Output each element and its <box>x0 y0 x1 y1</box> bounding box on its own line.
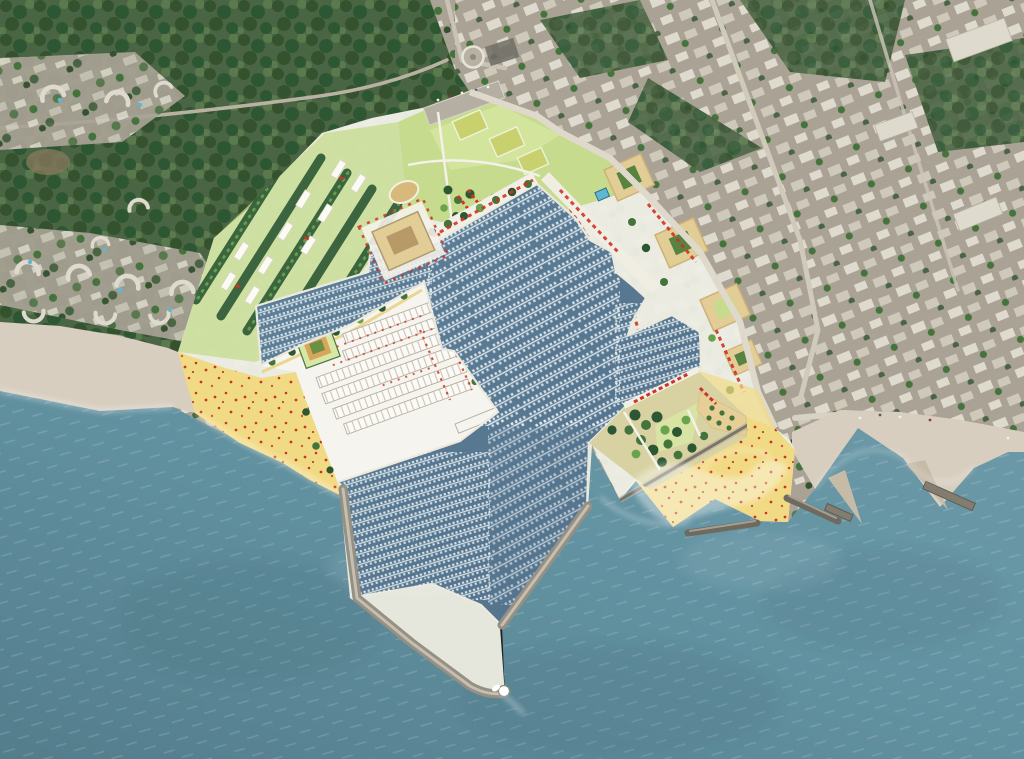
aerial-map-canvas <box>0 0 1024 759</box>
forest-clearing <box>26 149 70 175</box>
satellite-masterplan-figure: Aerial satellite view with marina master… <box>0 0 1024 759</box>
docks-southwest-basin <box>340 452 490 600</box>
